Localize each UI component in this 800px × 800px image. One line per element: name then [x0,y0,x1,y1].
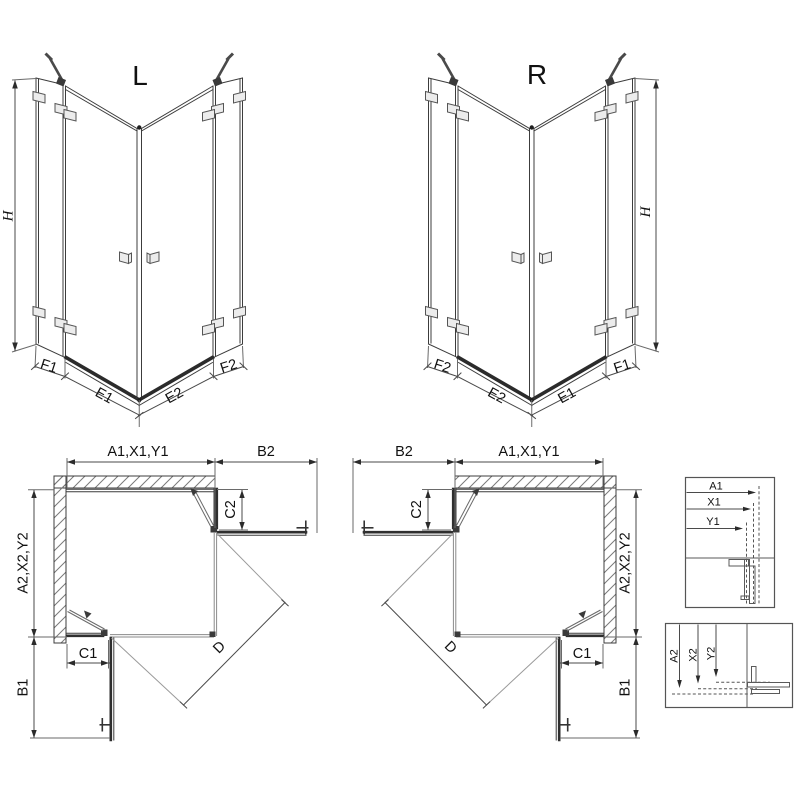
detail-label-x2: X2 [688,648,700,661]
detail-label-a2: A2 [669,649,681,662]
dim-label-b1-right: B1 [618,679,634,697]
dim-label-c2-right: C2 [409,500,425,519]
variant-label-right: R [527,59,547,90]
plan-left-geometry [28,458,317,740]
height-dimension-label-right: H [638,205,654,218]
plan-view-right: B2 A1,X1,Y1 A2,X2,Y2 B1 C1 C2 D [353,444,642,740]
wall-profile-section-bottom [748,667,790,694]
detail-label-x1: X1 [707,497,720,509]
detail-label-a1: A1 [709,481,722,493]
segment-label-e2-r: E2 [485,385,508,408]
dim-label-d-right: D [441,638,460,657]
iso-view-right: R H F2 E2 E1 F1 [424,54,659,428]
variant-label-left: L [132,60,148,91]
segment-label-e1-r: E1 [555,385,578,408]
width-detail-inset: A1 X1 Y1 [686,478,775,608]
height-dimension-label-left: H [1,209,17,222]
dim-label-b2-right: B2 [395,444,413,460]
detail-label-y2: Y2 [706,647,718,660]
detail-box-frame-top [686,478,775,608]
dim-label-a2x2y2-right: A2,X2,Y2 [618,532,634,593]
detail-label-y1: Y1 [706,516,719,528]
depth-detail-inset: A2 X2 Y2 [666,624,793,708]
dim-label-c2-left: C2 [223,500,239,519]
dim-label-c1-right: C1 [573,646,592,662]
dim-label-a1x1y1-right: A1,X1,Y1 [498,444,559,460]
wall-side-right-plan [604,476,616,643]
dim-label-c1-left: C1 [79,646,98,662]
dim-label-a2x2y2-left: A2,X2,Y2 [16,532,32,593]
dim-label-b1-left: B1 [16,679,32,697]
dim-label-b2-left: B2 [257,444,275,460]
segment-label-e1: E1 [92,385,115,408]
segment-label-e2: E2 [163,385,186,408]
segment-label-f1-r: F1 [612,356,633,376]
wall-side-left-plan [54,476,66,643]
dim-label-d-left: D [210,638,229,657]
plan-view-left: A1,X1,Y1 B2 A2,X2,Y2 B1 C1 C2 D [16,444,318,740]
iso-view-left: L H F1 E1 E2 F2 [1,54,248,428]
wall-top-right-plan [455,476,616,488]
detail-box-frame-bottom [666,624,793,708]
plan-right-geometry [353,458,642,740]
shower-enclosure-technical-drawing: L H F1 E1 E2 F2 R H F2 E2 E1 F1 A1,X1,Y1… [0,0,800,800]
wall-profile-section-top [729,560,755,604]
wall-top-left-plan [54,476,215,488]
dim-label-a1x1y1-left: A1,X1,Y1 [107,444,168,460]
segment-label-f2: F2 [218,356,239,376]
